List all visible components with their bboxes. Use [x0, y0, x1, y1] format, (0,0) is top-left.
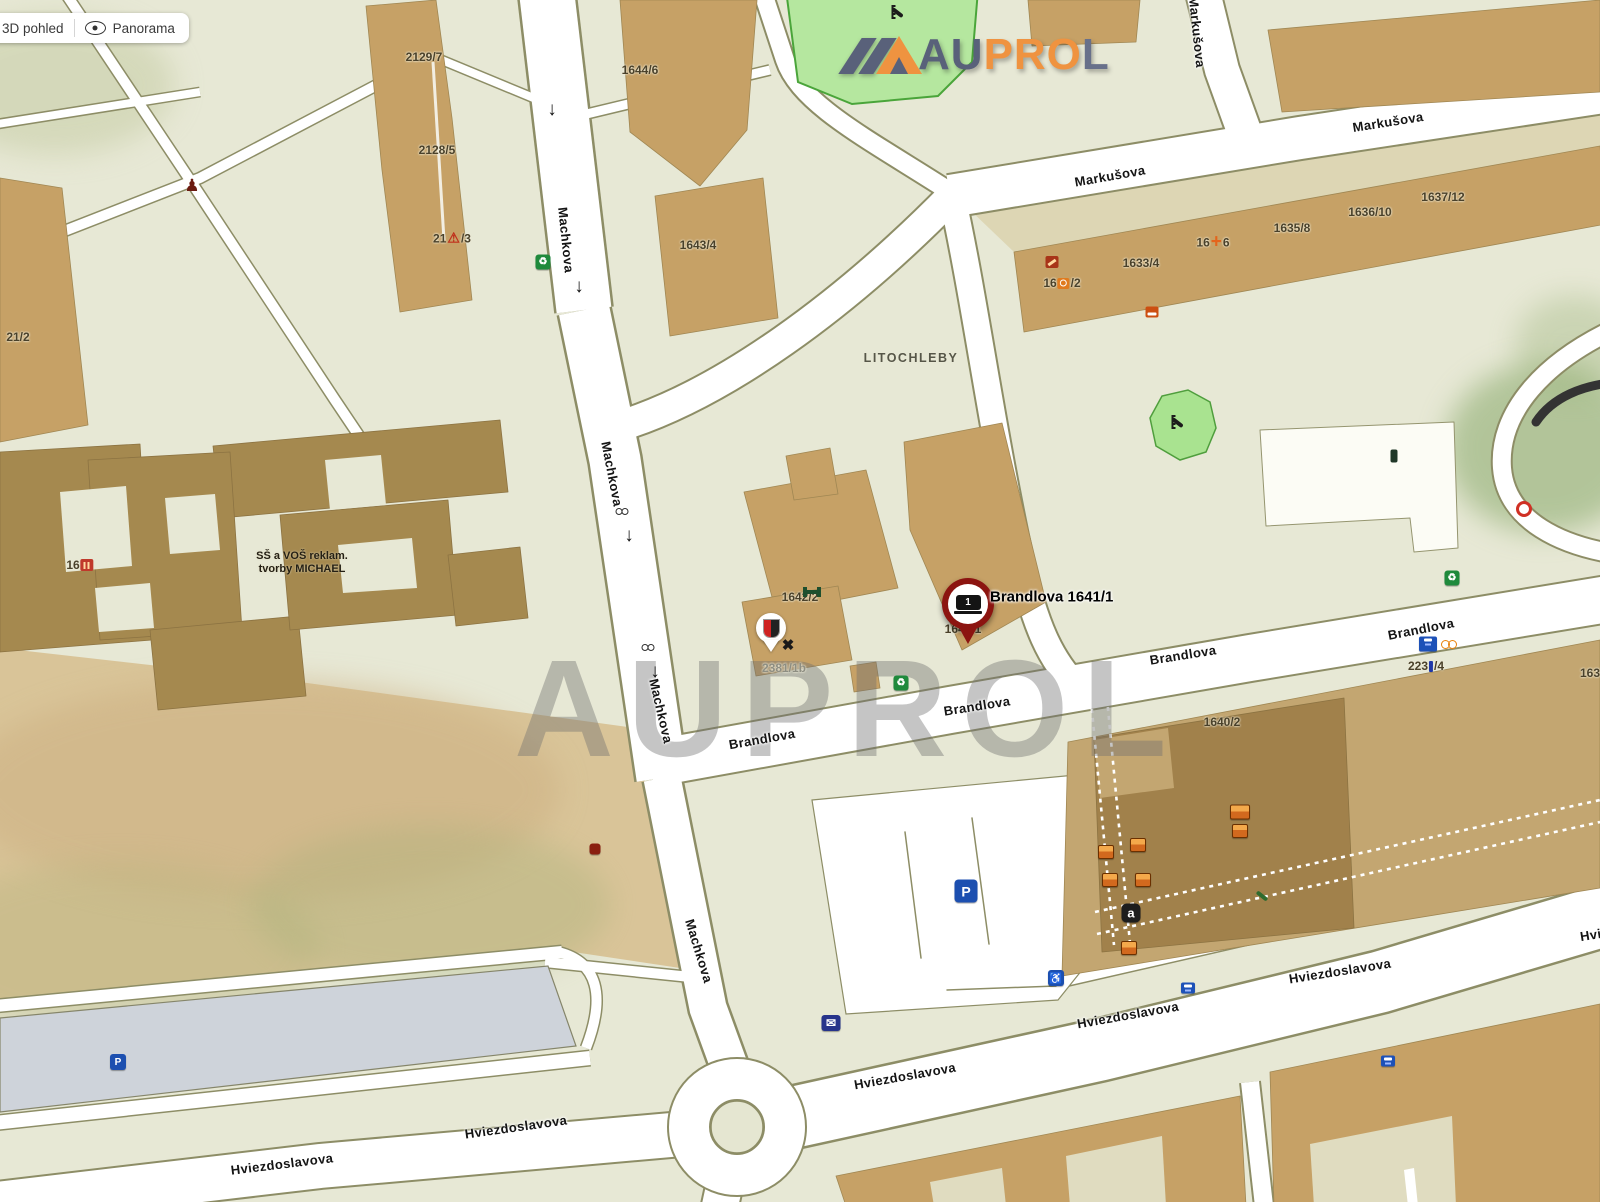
location-marker-pin[interactable]: 1 [942, 578, 994, 644]
building-number: 2128/5 [419, 143, 456, 157]
oneway-arrow-icon: ↓ [547, 99, 557, 121]
building-number: 21 [433, 231, 446, 245]
furniture-shop-icon[interactable] [1230, 805, 1250, 820]
signpost-icon[interactable] [1429, 661, 1433, 672]
school-poi-icon[interactable] [81, 559, 94, 571]
building-number-with-pole: 223/4 [1408, 659, 1444, 673]
eye-icon [85, 21, 106, 35]
pillar-poi-icon[interactable] [1391, 450, 1398, 463]
club-logo-pin[interactable] [756, 613, 786, 652]
marker-number: 1 [965, 597, 971, 608]
building-number: 16 [1196, 235, 1209, 249]
pharmacy-cross-icon[interactable]: + [1211, 234, 1222, 249]
recycle-icon[interactable]: ♻ [894, 676, 909, 691]
red-ring-poi [1518, 503, 1531, 516]
logo-text-l: L [1082, 30, 1110, 79]
bus-stop-icon[interactable] [1181, 983, 1195, 994]
bike-lane-icon [616, 507, 629, 515]
marker-head: 1 [942, 578, 994, 630]
building-number: /3 [461, 231, 471, 245]
view-3d-label: 3D pohled [2, 21, 64, 36]
map-toolbar: 3D pohled Panorama [0, 13, 189, 43]
building-number: 2129/7 [406, 50, 443, 64]
logo-text: AUPROL [918, 36, 1110, 74]
club-logo-pin-head [756, 613, 786, 643]
district-label: LITOCHLEBY [864, 351, 959, 365]
recycle-icon[interactable]: ♻ [1445, 571, 1460, 586]
tools-shop-icon[interactable] [1046, 256, 1059, 268]
wheelchair-icon[interactable]: ♿ [1048, 970, 1064, 986]
building-number-with-camera: 16/2 [1043, 276, 1080, 290]
playground-slide-icon[interactable] [1169, 415, 1186, 431]
hotel-icon[interactable] [1146, 307, 1159, 318]
oneway-arrow-icon: ↓ [650, 661, 660, 683]
building-number: /2 [1071, 276, 1081, 290]
building-number: 6 [1223, 235, 1230, 249]
building-number: 1636/10 [1348, 205, 1391, 219]
panorama-button[interactable]: Panorama [85, 21, 175, 36]
oneway-arrow-icon: ↓ [574, 276, 584, 298]
panorama-label: Panorama [113, 21, 175, 36]
watermark: AUPROL [514, 640, 1181, 778]
alza-shop-icon[interactable]: a [1122, 904, 1141, 923]
building-number: 16 [1043, 276, 1056, 290]
playground-slide-icon[interactable] [889, 5, 906, 21]
building-number: 223 [1408, 659, 1428, 673]
school-name-line2: tvorby MICHAEL [256, 563, 348, 576]
parcel-shop-icon[interactable] [1098, 845, 1114, 859]
building-number: 1637/12 [1421, 190, 1464, 204]
building-number-with-cross: 16+6 [1196, 234, 1229, 249]
building-number: 1643/4 [680, 238, 717, 252]
building-number: 2381/1b [762, 661, 806, 675]
school-name-label: SŠ a VOŠ reklam. tvorby MICHAEL [256, 550, 348, 576]
building-number-with-school: 16 [66, 558, 93, 572]
parking-icon[interactable]: P [110, 1054, 126, 1070]
oneway-arrow-icon: ↓ [624, 525, 634, 547]
toolbar-divider [74, 19, 75, 37]
parcel-shop-icon[interactable] [1130, 838, 1146, 852]
auprol-logo: AUPROL [850, 36, 1110, 74]
bike-lane-icon [642, 643, 655, 651]
building-number: 1644/6 [622, 63, 659, 77]
parcel-shop-icon[interactable] [1135, 873, 1151, 887]
shopping-cart-icon[interactable] [1232, 824, 1248, 838]
building-number: 21/2 [6, 330, 29, 344]
bus-stop-icon[interactable] [1381, 1056, 1395, 1067]
camera-icon[interactable] [1058, 278, 1070, 289]
fitness-icon[interactable] [807, 590, 817, 594]
building-number-with-warning: 21⚠/3 [433, 230, 471, 247]
street-label-hviezdoslavova-cut: Hvi [1579, 926, 1600, 944]
laptop-icon: 1 [948, 584, 988, 624]
warning-icon[interactable]: ⚠ [447, 230, 460, 247]
logo-text-pro: PRO [984, 30, 1082, 79]
parcel-shop-icon[interactable] [1102, 873, 1118, 887]
parcel-shop-icon[interactable] [1121, 941, 1137, 955]
shield-icon [763, 619, 780, 638]
recycle-icon[interactable]: ♻ [536, 255, 551, 270]
monument-icon[interactable]: ♟ [184, 176, 199, 196]
building-number: 1640/2 [1204, 715, 1241, 729]
post-office-icon[interactable]: ✉ [822, 1015, 841, 1031]
parking-icon[interactable]: P [955, 880, 978, 903]
building-number: 1635/8 [1274, 221, 1311, 235]
small-red-poi-icon[interactable] [590, 844, 601, 855]
school-name-line1: SŠ a VOŠ reklam. [256, 550, 348, 563]
building-number: 1633/4 [1123, 256, 1160, 270]
map-stage: AUPROL Machkova Machkova Machkova Machko… [0, 0, 1600, 1202]
logo-text-au: AU [918, 30, 984, 79]
building-number-cut: 163 [1580, 666, 1600, 680]
roundabout [689, 1079, 785, 1175]
building-number: 16 [66, 558, 79, 572]
building-number: /4 [1434, 659, 1444, 673]
marker-label: Brandlova 1641/1 [990, 589, 1113, 606]
bike-rental-icon[interactable] [1441, 639, 1457, 649]
bus-stop-icon[interactable] [1419, 637, 1437, 652]
view-3d-button[interactable]: 3D pohled [2, 21, 64, 36]
